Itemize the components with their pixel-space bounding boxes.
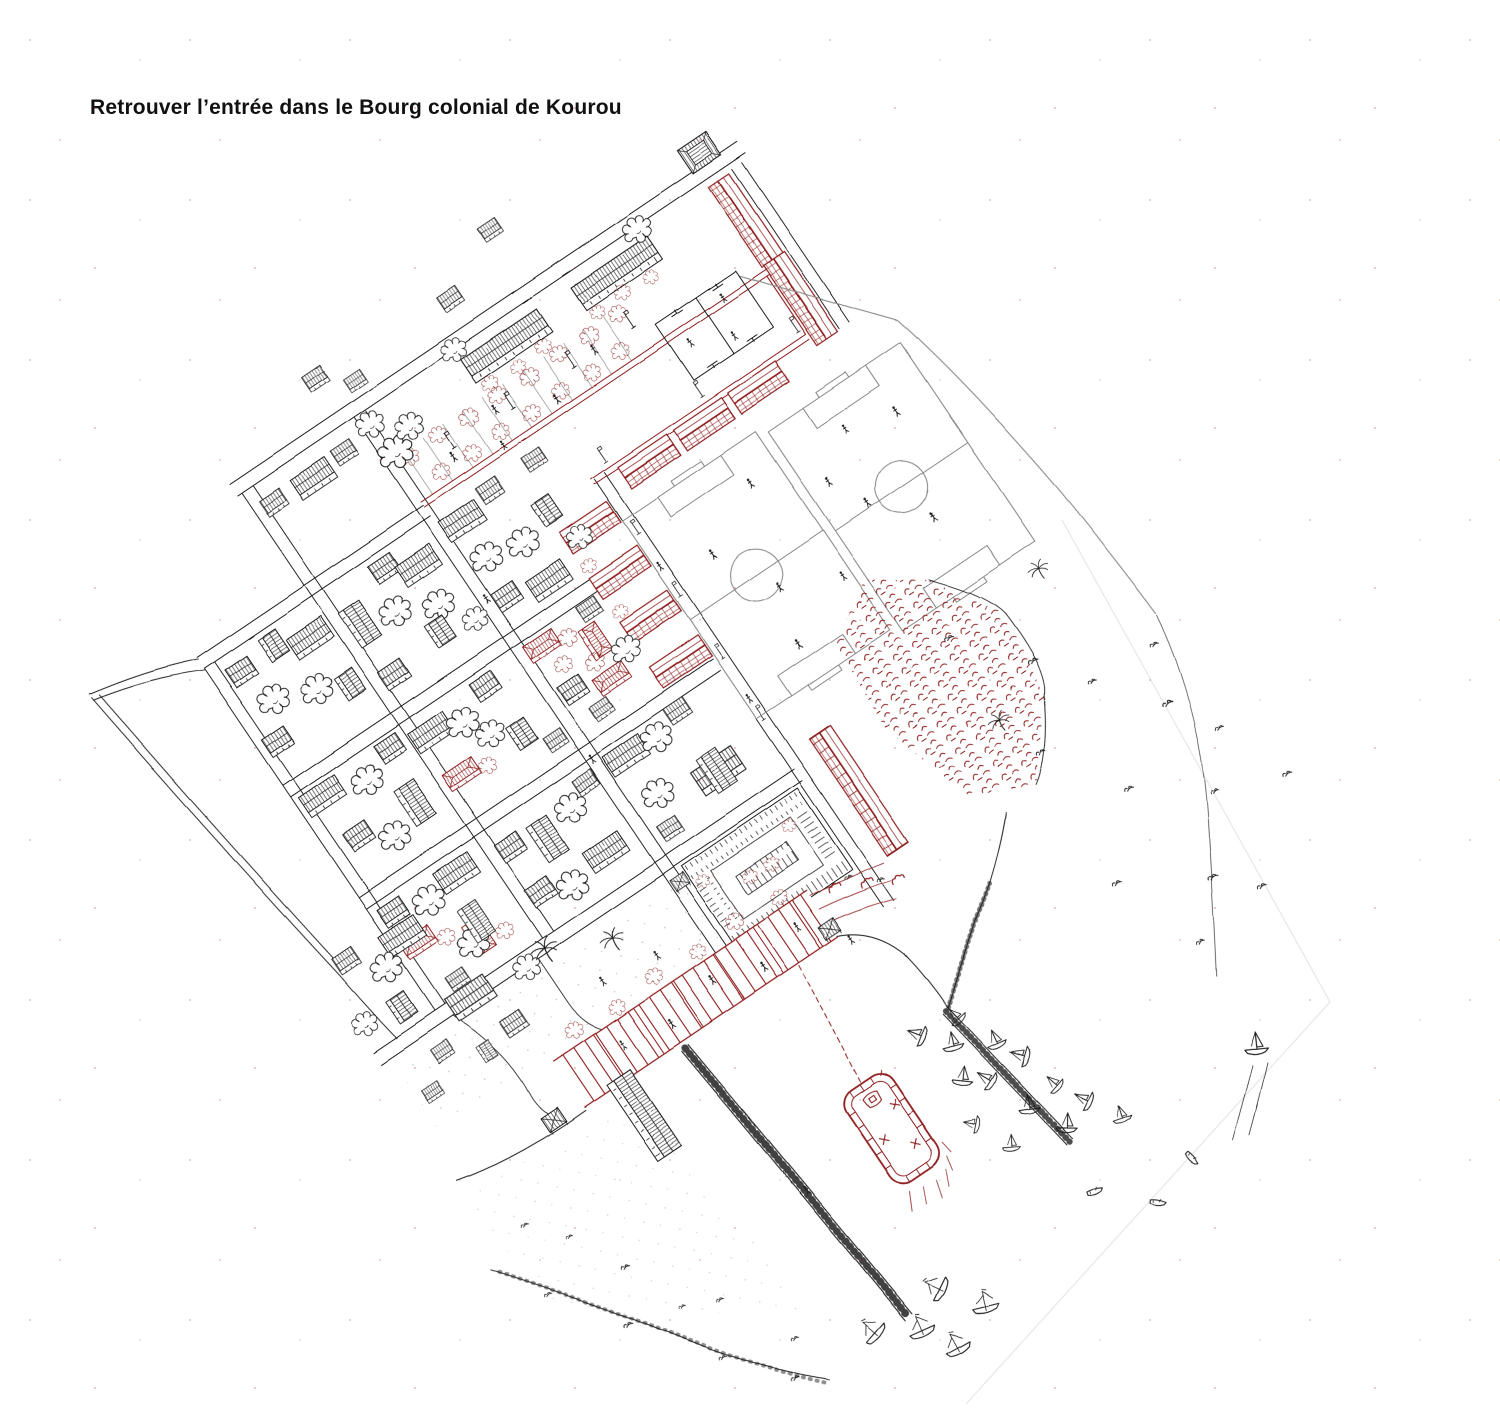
- sketch-sheet: Retrouver l’entrée dans le Bourg colonia…: [0, 0, 1500, 1417]
- paper-speckle: [0, 0, 1500, 1417]
- axonometric-drawing: [0, 0, 1500, 1417]
